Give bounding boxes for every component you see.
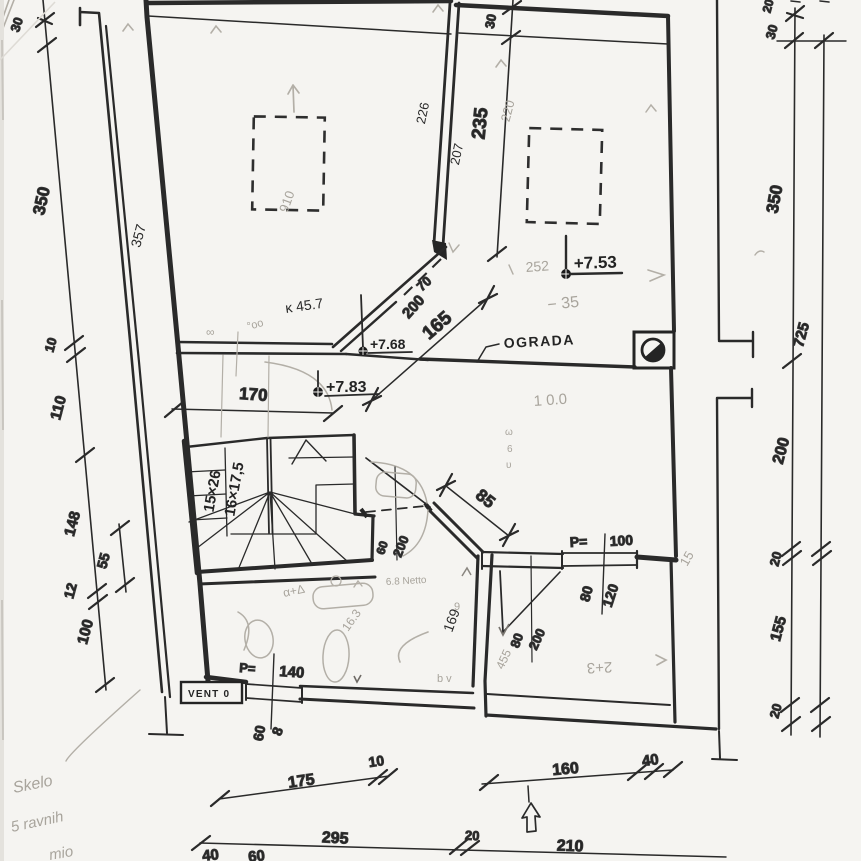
svg-text:295: 295 <box>321 829 349 847</box>
svg-text:140: 140 <box>279 663 305 682</box>
svg-text:b v: b v <box>437 673 452 685</box>
svg-text:20: 20 <box>465 828 480 844</box>
svg-text:2+3: 2+3 <box>586 658 612 676</box>
svg-text:+7.68: +7.68 <box>370 336 406 352</box>
svg-text:210: 210 <box>557 838 584 856</box>
svg-text:9: 9 <box>454 601 460 613</box>
svg-text:+7.53: +7.53 <box>573 253 617 273</box>
svg-text:60: 60 <box>247 847 265 861</box>
svg-text:6.8 Netto: 6.8 Netto <box>386 575 428 588</box>
svg-text:160: 160 <box>552 760 580 779</box>
svg-text:υ: υ <box>506 460 511 471</box>
svg-text:40: 40 <box>201 846 219 861</box>
svg-text:40: 40 <box>641 751 660 770</box>
svg-text:6: 6 <box>507 444 513 455</box>
svg-text:100: 100 <box>609 532 633 549</box>
svg-text:+7.83: +7.83 <box>326 379 367 396</box>
svg-text:ω: ω <box>505 427 513 438</box>
svg-text:60: 60 <box>250 724 268 742</box>
svg-text:P=: P= <box>239 660 257 676</box>
svg-text:10: 10 <box>367 752 385 770</box>
svg-text:235: 235 <box>468 106 492 140</box>
svg-text:VENT 0: VENT 0 <box>188 689 230 700</box>
svg-text:P=: P= <box>569 533 587 550</box>
svg-text:252: 252 <box>525 257 550 275</box>
svg-text:∞: ∞ <box>206 325 215 339</box>
svg-text:− 35: − 35 <box>547 294 580 314</box>
svg-text:1 0.0: 1 0.0 <box>533 391 567 410</box>
svg-text:30: 30 <box>482 13 499 30</box>
svg-text:mio: mio <box>48 843 75 861</box>
svg-text:170: 170 <box>239 384 269 405</box>
